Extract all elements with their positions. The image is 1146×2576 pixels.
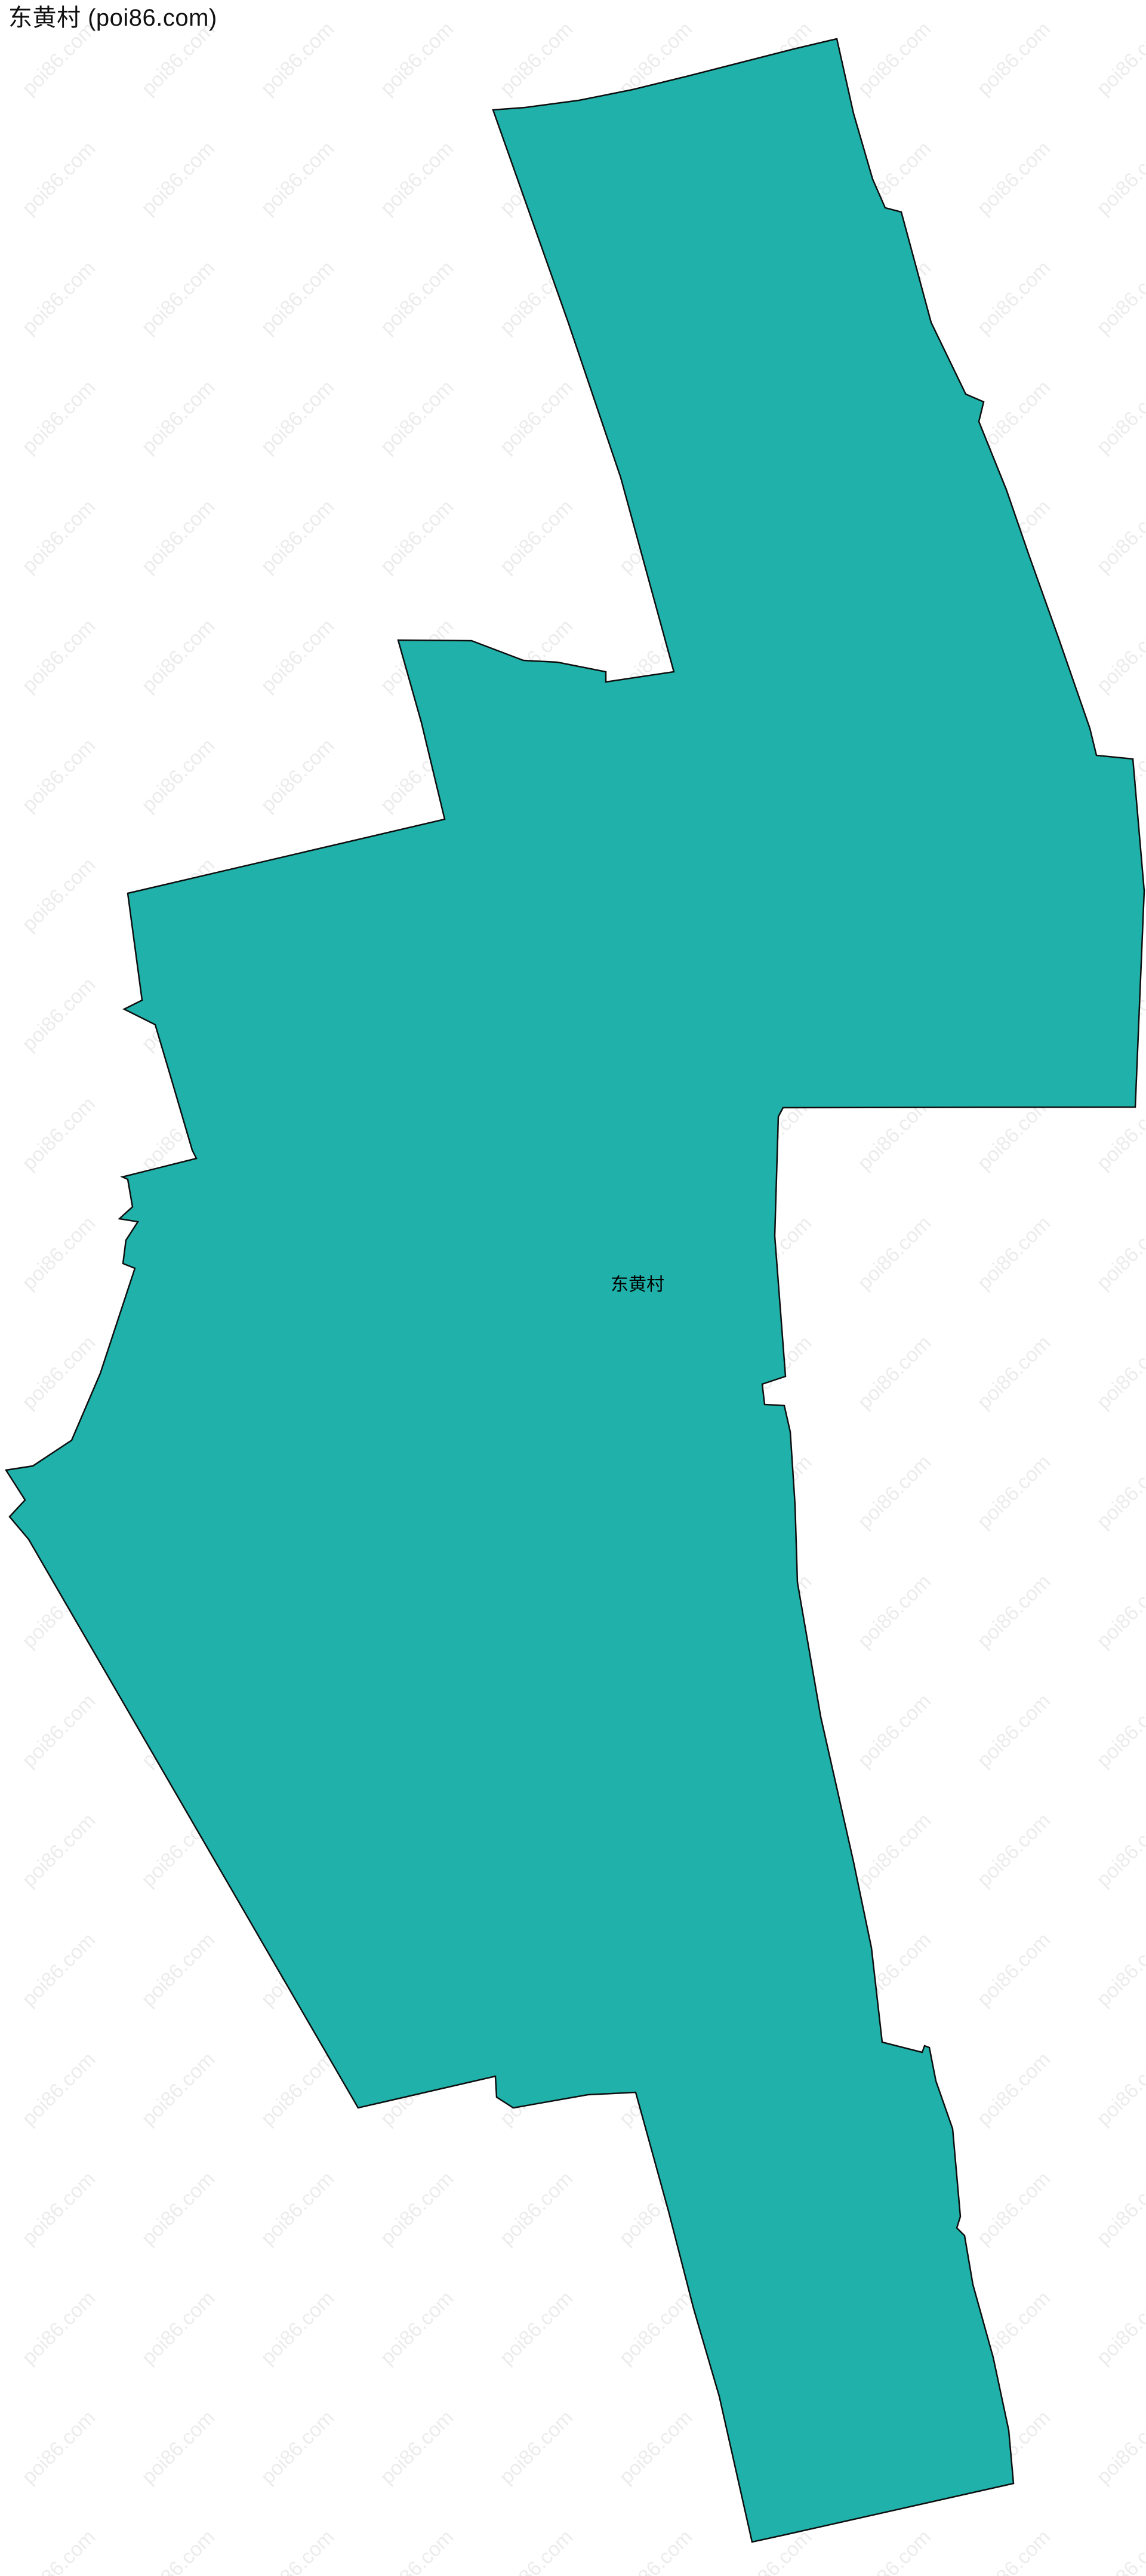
village-label: 东黄村 [611,1269,664,1296]
boundary-map[interactable]: poi86.com [0,0,1146,2576]
page-title: 东黄村 (poi86.com) [8,4,217,32]
map-canvas[interactable]: poi86.com 东黄村 (poi86.com) 东黄村 [0,0,1146,2576]
